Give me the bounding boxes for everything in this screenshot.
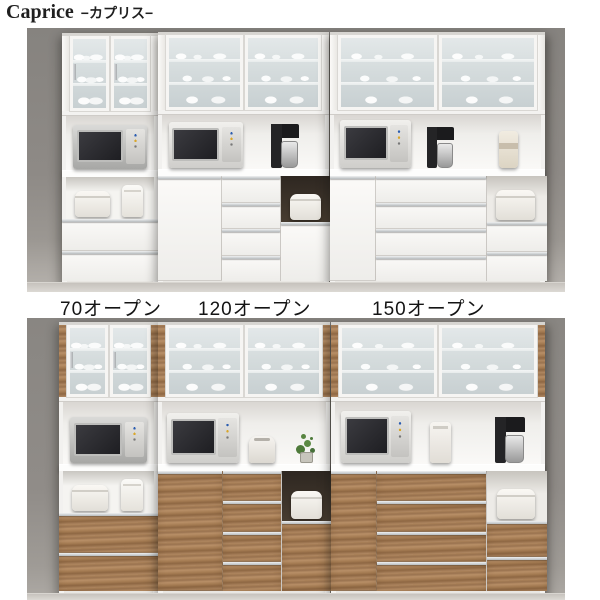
product-title-jp: −カプリス− (81, 5, 153, 21)
product-title-en: Caprice (6, 1, 74, 23)
microwave-window (77, 130, 123, 162)
coffee-maker-column (427, 127, 437, 168)
counter-top (62, 170, 158, 177)
door-handle (73, 64, 76, 81)
sliding-glass-door (339, 325, 437, 397)
drawer-front (62, 219, 158, 251)
microwave-control-panel (390, 125, 408, 162)
drawer-front (223, 471, 281, 501)
cabinet-70-walnut (59, 322, 158, 595)
sliding-glass-door (245, 35, 322, 110)
product-photo-white-set (27, 28, 565, 292)
drawer-front (222, 256, 280, 282)
rice-cooker (75, 191, 110, 217)
niche-column (487, 471, 547, 591)
sliding-glass-door (166, 325, 243, 397)
microwave-window (74, 423, 122, 456)
microwave-window (172, 128, 219, 161)
rice-cooker (497, 489, 535, 519)
open-counter-section (331, 402, 545, 464)
microwave-oven (167, 413, 239, 463)
microwave-control-panel (218, 418, 237, 457)
base-cabinet (158, 176, 329, 281)
door-stile (331, 325, 339, 397)
glass-cabinet-section (158, 325, 330, 397)
cabinet-door (158, 471, 223, 591)
coffee-maker (427, 127, 454, 168)
niche-column (487, 176, 547, 281)
rice-cooker (72, 485, 108, 511)
sliding-glass-door (439, 35, 538, 110)
product-image: Caprice−カプリス− (0, 0, 600, 600)
drawer-column (222, 176, 281, 281)
microwave-window (344, 126, 388, 161)
cabinet-door (158, 176, 222, 281)
drawer-front (377, 562, 486, 591)
drawer-column (376, 176, 487, 281)
houseplant (294, 427, 318, 463)
studio-floor (27, 282, 565, 292)
drawer-front (487, 521, 547, 557)
size-label-70: 70オープン (60, 294, 162, 321)
glass-door (111, 36, 150, 111)
door-stile (150, 36, 158, 111)
cabinet-150-white (330, 32, 545, 285)
microwave-window (171, 419, 216, 455)
microwave-oven (73, 125, 147, 169)
door-stile (322, 325, 330, 397)
counter-top (158, 169, 329, 176)
cabinet-70-white (62, 33, 158, 285)
size-label-120: 120オープン (198, 294, 312, 321)
rice-cooker (290, 194, 321, 220)
base-cabinet (158, 471, 330, 591)
base-cabinet (331, 471, 545, 591)
door-stile (330, 35, 338, 110)
open-niche (59, 471, 158, 513)
microwave-control-panel (391, 416, 409, 457)
glass-cabinet-section (158, 35, 329, 110)
open-niche (62, 177, 158, 219)
microwave-control-panel (222, 127, 241, 163)
glass-cabinet-section (330, 35, 545, 110)
sliding-glass-door (245, 325, 322, 397)
counter-top (59, 464, 158, 471)
open-counter-section (330, 115, 545, 169)
door-stile (158, 325, 166, 397)
drawer-front (376, 203, 486, 230)
door-stile (59, 325, 67, 397)
coffee-carafe (505, 435, 523, 463)
drawer-front (487, 222, 547, 252)
drawer-front (376, 176, 486, 203)
drawer-front (222, 203, 280, 230)
drawer-front (59, 553, 158, 592)
drawer-column (377, 471, 487, 591)
cabinet-door (281, 222, 331, 281)
coffee-maker (271, 124, 299, 168)
niche-column (281, 176, 331, 281)
open-counter-section (158, 402, 330, 464)
base-cabinet (330, 176, 545, 281)
blender (430, 422, 451, 463)
cabinet-door (282, 521, 332, 591)
door-stile (62, 36, 70, 111)
product-photo-walnut-set (27, 318, 565, 600)
cabinet-120-white (158, 32, 329, 285)
glass-cabinet-section (59, 325, 158, 397)
drawer-front (377, 471, 486, 501)
base-cabinet (62, 177, 158, 281)
microwave-oven (70, 417, 146, 463)
glass-door (70, 36, 109, 111)
open-niche (487, 471, 547, 521)
size-label-row: 70オープン 120オープン 150オープン (0, 294, 600, 318)
open-niche (281, 176, 331, 222)
drawer-front (222, 229, 280, 256)
drawer-front (62, 251, 158, 282)
toaster (249, 436, 275, 463)
sliding-glass-door (166, 35, 243, 110)
sliding-glass-door (439, 325, 537, 397)
rice-cooker (496, 190, 535, 220)
coffee-maker-column (271, 124, 282, 168)
counter-top (158, 464, 330, 471)
niche-column (282, 471, 332, 591)
open-niche (487, 176, 547, 222)
door-stile (150, 325, 158, 397)
microwave-window (345, 417, 389, 454)
cabinet-door (331, 471, 377, 591)
microwave-oven (169, 122, 244, 168)
door-stile (158, 35, 166, 110)
door-stile (537, 325, 545, 397)
cabinet-door (330, 176, 376, 281)
coffee-carafe (281, 141, 298, 168)
door-stile (321, 35, 329, 110)
counter-top (330, 169, 545, 176)
microwave-oven (340, 120, 410, 168)
electric-kettle (122, 185, 143, 217)
microwave-control-panel (126, 129, 145, 163)
drawer-front (223, 501, 281, 531)
size-label-150: 150オープン (372, 294, 486, 321)
studio-floor (27, 593, 565, 600)
microwave-oven (341, 411, 411, 463)
sliding-glass-door (338, 35, 437, 110)
glass-cabinet-section (331, 325, 545, 397)
drawer-column (223, 471, 282, 591)
door-handle (70, 352, 73, 368)
drawer-front (487, 557, 547, 592)
drawer-front (377, 501, 486, 531)
open-counter-section (59, 402, 158, 464)
drawer-front (59, 513, 158, 553)
plant-pot (300, 452, 313, 463)
open-niche (282, 471, 332, 521)
drawer-front (377, 532, 486, 562)
glass-cabinet-section (62, 36, 158, 111)
cabinet-120-walnut (158, 322, 330, 595)
door-handle (113, 352, 116, 368)
rice-cooker (291, 491, 322, 519)
drawer-front (487, 252, 547, 281)
product-title: Caprice−カプリス− (6, 1, 153, 24)
drawer-front (376, 256, 486, 282)
open-counter-section (62, 116, 158, 170)
drawer-front (222, 176, 280, 203)
glass-door (110, 325, 151, 397)
base-cabinet (59, 471, 158, 591)
door-stile (537, 35, 545, 110)
drawer-front (223, 532, 281, 562)
door-handle (114, 64, 117, 81)
coffee-grinder (499, 131, 518, 168)
open-counter-section (158, 115, 329, 169)
coffee-maker-column (495, 417, 506, 463)
counter-top (331, 464, 545, 471)
drawer-front (376, 229, 486, 256)
drawer-front (223, 562, 281, 591)
coffee-carafe (437, 143, 454, 168)
glass-door (67, 325, 108, 397)
electric-kettle (121, 479, 143, 511)
coffee-maker (495, 417, 525, 463)
microwave-control-panel (125, 422, 145, 458)
cabinet-150-walnut (331, 322, 545, 595)
